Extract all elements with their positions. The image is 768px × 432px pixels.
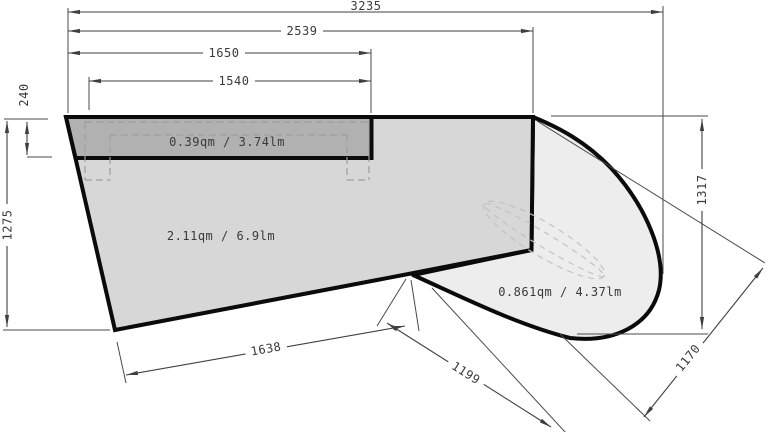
plan-canvas: 3235 2539 1650 1540 240 1275 1317 1638 1…	[0, 0, 768, 432]
dim-label-1199: 1199	[445, 356, 488, 390]
svg-text:1638: 1638	[250, 339, 283, 358]
floor-plan-drawing: 3235 2539 1650 1540 240 1275 1317 1638 1…	[0, 0, 768, 432]
dim-label-1317: 1317	[695, 169, 709, 211]
dim-label-3235: 3235	[351, 0, 382, 13]
svg-text:1540: 1540	[219, 74, 250, 88]
svg-text:2539: 2539	[287, 24, 318, 38]
area-label-top-strip: 0.39qm / 3.74lm	[169, 135, 285, 149]
svg-text:1275: 1275	[1, 210, 15, 241]
dim-label-1638: 1638	[244, 338, 288, 359]
dim-label-1540: 1540	[213, 74, 255, 88]
area-label-main: 2.11qm / 6.9lm	[167, 229, 275, 243]
dim-label-240: 240	[17, 83, 31, 106]
svg-text:240: 240	[17, 83, 31, 106]
svg-text:1650: 1650	[209, 46, 240, 60]
svg-text:1317: 1317	[695, 175, 709, 206]
dim-label-1650: 1650	[203, 46, 245, 60]
dim-label-1275: 1275	[1, 204, 15, 246]
dim-label-1170: 1170	[669, 337, 706, 378]
area-label-right-curve: 0.861qm / 4.37lm	[498, 285, 622, 299]
svg-text:1199: 1199	[449, 359, 483, 387]
dim-label-2539: 2539	[281, 24, 323, 38]
